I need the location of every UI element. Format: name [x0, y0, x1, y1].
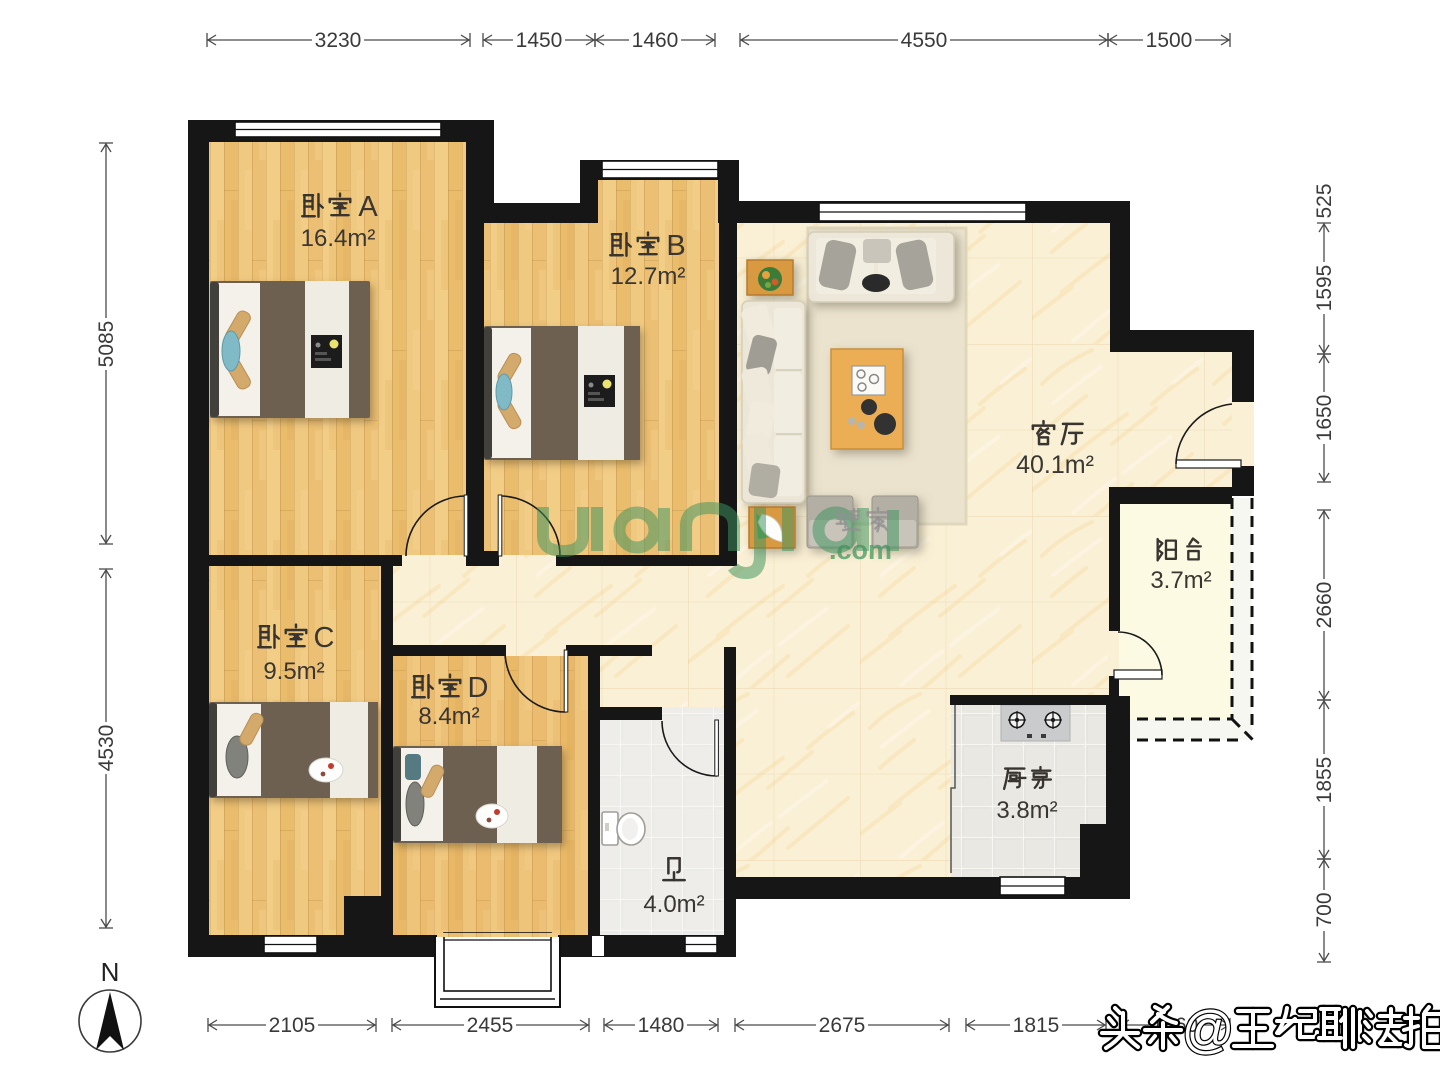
- svg-text:1595: 1595: [1313, 265, 1336, 312]
- svg-text:700: 700: [1313, 892, 1336, 927]
- svg-text:3.8m²: 3.8m²: [996, 797, 1057, 824]
- svg-text:9.5m²: 9.5m²: [263, 658, 324, 685]
- svg-text:1460: 1460: [632, 29, 679, 52]
- svg-text:2675: 2675: [819, 1014, 866, 1037]
- svg-text:@: @: [1182, 1001, 1235, 1059]
- svg-text:4530: 4530: [95, 725, 118, 772]
- svg-text:4550: 4550: [901, 29, 948, 52]
- svg-text:16.4m²: 16.4m²: [301, 225, 376, 252]
- svg-text:2455: 2455: [467, 1014, 514, 1037]
- svg-text:3.7m²: 3.7m²: [1150, 567, 1211, 594]
- svg-text:C: C: [314, 622, 335, 654]
- svg-text:.com: .com: [829, 535, 892, 565]
- svg-text:8.4m²: 8.4m²: [418, 703, 479, 730]
- svg-text:1480: 1480: [638, 1014, 685, 1037]
- svg-text:1815: 1815: [1013, 1014, 1060, 1037]
- svg-text:40.1m²: 40.1m²: [1016, 451, 1094, 479]
- svg-text:D: D: [468, 672, 489, 704]
- svg-text:1855: 1855: [1313, 757, 1336, 804]
- svg-text:2105: 2105: [269, 1014, 316, 1037]
- svg-text:N: N: [101, 957, 120, 987]
- svg-text:525: 525: [1313, 183, 1336, 218]
- svg-text:B: B: [666, 230, 685, 262]
- svg-text:1650: 1650: [1313, 395, 1336, 442]
- svg-text:5085: 5085: [95, 321, 118, 368]
- svg-text:1450: 1450: [516, 29, 563, 52]
- svg-text:3230: 3230: [315, 29, 362, 52]
- svg-text:1500: 1500: [1146, 29, 1193, 52]
- svg-text:12.7m²: 12.7m²: [611, 263, 686, 290]
- svg-text:2660: 2660: [1313, 582, 1336, 629]
- svg-text:A: A: [358, 191, 378, 223]
- svg-text:4.0m²: 4.0m²: [643, 891, 704, 918]
